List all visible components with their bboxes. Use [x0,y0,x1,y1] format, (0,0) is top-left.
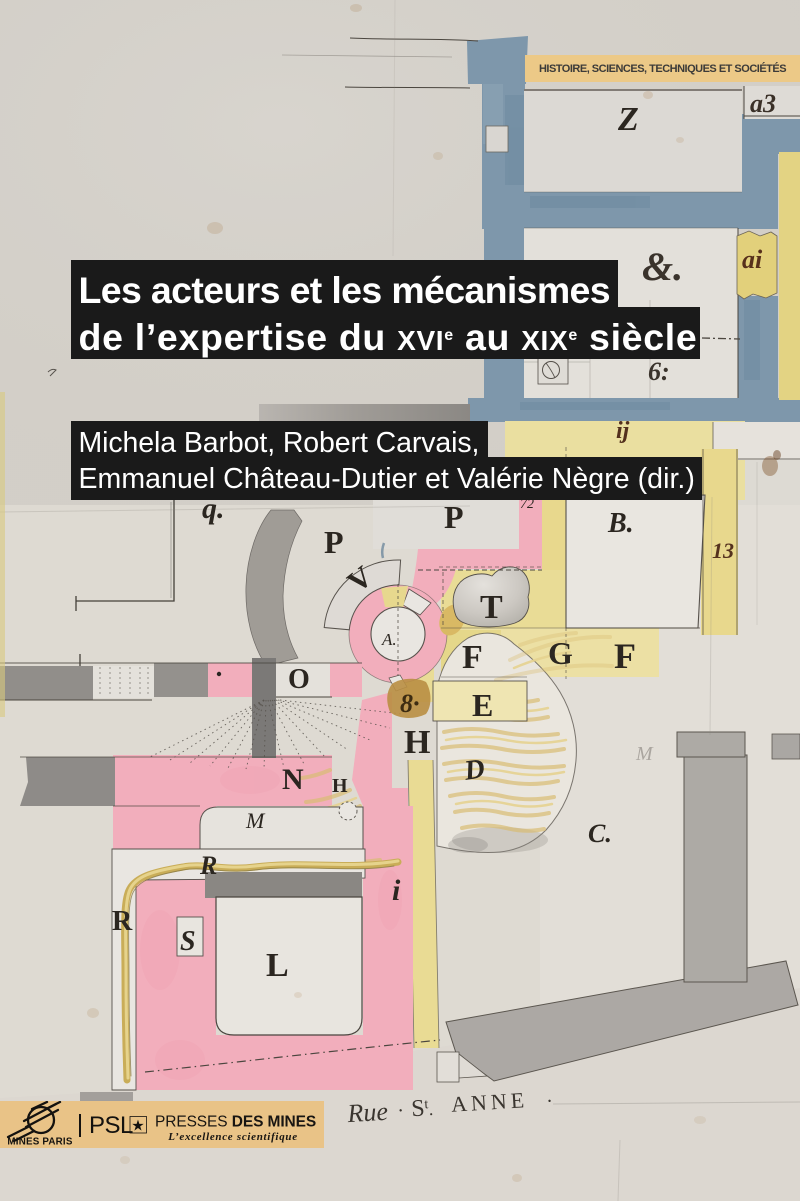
svg-text:S: S [180,926,196,957]
svg-text:i: i [392,874,401,907]
svg-text:8·: 8· [400,689,420,718]
svg-text:Rue: Rue [346,1097,389,1128]
svg-text:M: M [245,808,266,833]
svg-text:F: F [462,639,483,676]
svg-text:MINES PARIS: MINES PARIS [7,1137,72,1148]
svg-text:O: O [288,664,310,695]
svg-text:L’excellence scientifique: L’excellence scientifique [167,1131,298,1143]
svg-text:ai: ai [742,245,763,274]
svg-text:13: 13 [712,538,734,563]
svg-text:★: ★ [131,1118,144,1135]
svg-text:M: M [635,743,654,765]
svg-text:D: D [461,753,486,787]
svg-text:E: E [472,687,493,723]
svg-text:·: · [397,1100,405,1122]
svg-text:6:: 6: [648,357,670,386]
svg-text:ij: ij [616,418,630,444]
svg-text:&.: &. [642,244,683,289]
svg-text:P: P [444,499,464,535]
svg-text:L: L [266,947,289,984]
svg-text:a3: a3 [750,89,776,118]
svg-text:PSL: PSL [89,1112,133,1139]
svg-text:R: R [199,851,217,880]
svg-text:B.: B. [607,508,634,539]
svg-text:T: T [480,589,503,626]
svg-text:H: H [332,775,348,797]
svg-text:R: R [112,906,133,937]
svg-text:G: G [548,635,573,671]
svg-text:P: P [324,524,344,560]
svg-text:A.: A. [381,630,397,649]
svg-text:C.: C. [588,819,612,848]
svg-text:St.: St. [411,1095,434,1122]
svg-text:ANNE: ANNE [450,1087,528,1117]
svg-text:Z: Z [617,101,639,138]
svg-text:PRESSES DES MINES: PRESSES DES MINES [155,1114,316,1131]
svg-text:F: F [614,636,636,676]
svg-text:H: H [404,724,430,761]
svg-text:N: N [282,763,304,796]
